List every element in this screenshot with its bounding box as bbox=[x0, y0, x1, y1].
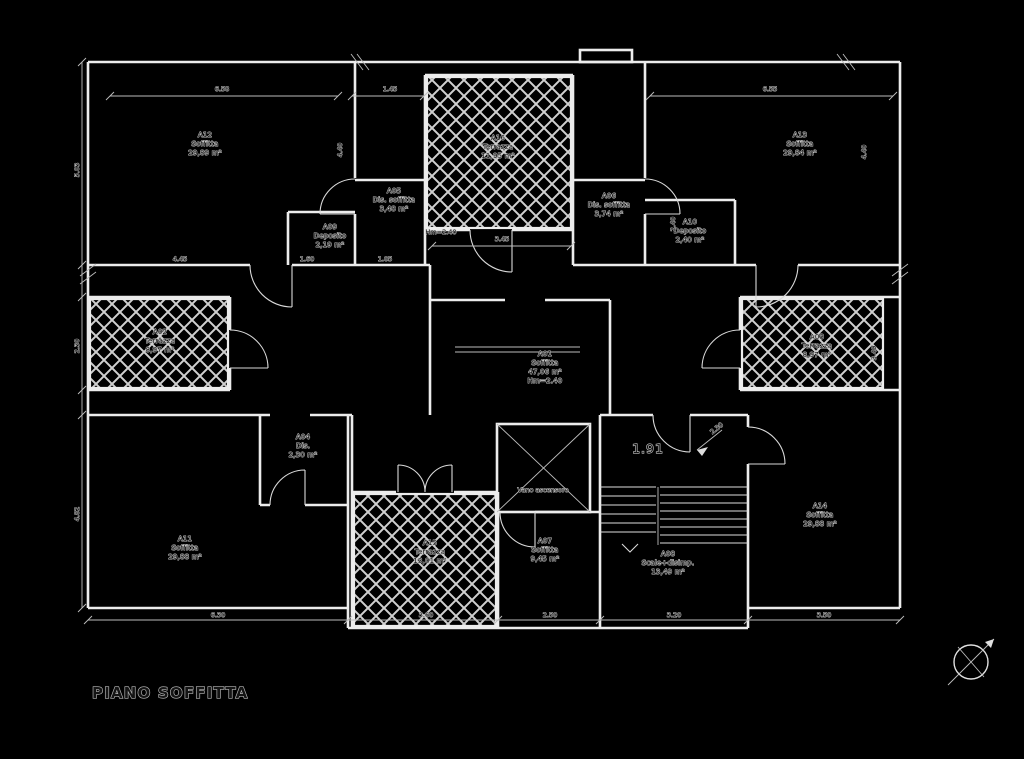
room-a09-code: A09 bbox=[323, 223, 337, 231]
room-a05-code: A05 bbox=[387, 187, 401, 195]
room-a01-height: Hm=2.40 bbox=[528, 377, 563, 385]
room-a12-area: 29,89 m² bbox=[188, 149, 222, 157]
dim-top-right-width: 6.55 bbox=[763, 85, 777, 93]
room-a07-name: Soffitta bbox=[532, 546, 559, 554]
room-a01-code: A01 bbox=[538, 350, 552, 358]
room-a03-code: A03 bbox=[810, 333, 824, 341]
roof-chimney bbox=[580, 50, 632, 62]
room-a14-name: Soffitta bbox=[807, 511, 834, 519]
room-a16-name: Terrazza bbox=[482, 143, 514, 151]
room-a05-area: 3,48 m² bbox=[380, 205, 409, 213]
dim-top-mid-left: 1.45 bbox=[383, 85, 397, 93]
room-a09-name: Deposito bbox=[314, 232, 347, 240]
room-a08-area: 13,49 m² bbox=[651, 568, 685, 576]
dim-a12-height: 4.40 bbox=[336, 143, 344, 157]
dim-left-middle: 2.30 bbox=[73, 339, 81, 353]
room-a16-area: 11,95 m² bbox=[481, 152, 515, 160]
dim-inner-3: 1.05 bbox=[378, 255, 392, 263]
room-a07-code: A07 bbox=[538, 537, 552, 545]
room-a16-code: A16 bbox=[491, 134, 506, 142]
stair-width-dim: 1.91 bbox=[632, 441, 664, 456]
north-compass-icon bbox=[948, 639, 994, 685]
dim-right-terrace: 3.40 bbox=[870, 346, 878, 360]
elevator-cross-lines bbox=[497, 424, 590, 512]
dim-terrace-top-width: 3.45 bbox=[495, 235, 509, 243]
dim-inner-1: 4.45 bbox=[173, 255, 187, 263]
room-a15-area: 13,01 m² bbox=[413, 557, 447, 565]
room-a11-code: A11 bbox=[178, 535, 192, 543]
dim-bottom-3: 2.50 bbox=[543, 611, 557, 619]
room-a04-area: 2,30 m² bbox=[289, 451, 318, 459]
room-a13-code: A13 bbox=[793, 131, 807, 139]
room-a13-area: 29,84 m² bbox=[783, 149, 817, 157]
room-a04-code: A04 bbox=[296, 433, 311, 441]
room-a10-name: Deposito bbox=[674, 227, 707, 235]
room-a12-name: Soffitta bbox=[192, 140, 219, 148]
room-a03-name: Terrazza bbox=[801, 342, 833, 350]
room-a06-area: 3,74 m² bbox=[595, 210, 624, 218]
room-a12-code: A12 bbox=[198, 131, 212, 139]
room-a14-code: A14 bbox=[813, 502, 828, 510]
floor-plan-drawing: A12 Soffitta 29,89 m² A16 Terrazza 11,95… bbox=[0, 0, 1024, 759]
room-a08-name: Scale+disimp. bbox=[642, 559, 695, 567]
room-a07-area: 9,45 m² bbox=[531, 555, 560, 563]
room-a05-name: Dis. soffitta bbox=[373, 196, 416, 204]
room-a06-code: A06 bbox=[602, 192, 617, 200]
room-a13-name: Soffitta bbox=[787, 140, 814, 148]
dim-bottom-5: 3.50 bbox=[817, 611, 831, 619]
dim-top-left-width: 6.58 bbox=[215, 85, 229, 93]
room-a14-area: 29,88 m² bbox=[803, 520, 837, 528]
room-a06-name: Dis. soffitta bbox=[588, 201, 631, 209]
staircase bbox=[600, 487, 748, 552]
floor-plan-page: A12 Soffitta 29,89 m² A16 Terrazza 11,95… bbox=[0, 0, 1024, 759]
plan-title: PIANO SOFFITTA bbox=[92, 684, 248, 702]
mean-height-note: Hm=2.40 bbox=[425, 228, 456, 236]
stair-direction-arrow bbox=[622, 544, 638, 552]
room-a15-name: Terrazza bbox=[414, 548, 446, 556]
dim-inner-2: 1.60 bbox=[300, 255, 314, 263]
room-a11-name: Soffitta bbox=[172, 544, 199, 552]
dim-a06-height: 2.40 bbox=[669, 217, 677, 231]
room-a10-area: 2,40 m² bbox=[676, 236, 705, 244]
dim-bottom-2: 3.60 bbox=[419, 611, 433, 619]
elevator-shaft bbox=[497, 424, 590, 512]
elevator-label: Vano ascensore bbox=[517, 486, 568, 494]
room-a10-code: A10 bbox=[683, 218, 697, 226]
room-a02-code: A02 bbox=[153, 328, 167, 336]
dim-left-lower: 4.82 bbox=[73, 507, 81, 521]
dim-a13-height: 4.40 bbox=[860, 145, 868, 159]
dim-bottom-4: 3.20 bbox=[667, 611, 681, 619]
room-a03-area: 8,97 m² bbox=[803, 351, 832, 359]
room-a15-code: A15 bbox=[423, 539, 437, 547]
room-a02-area: 8,97 m² bbox=[146, 346, 175, 354]
room-a11-area: 29,88 m² bbox=[168, 553, 202, 561]
room-a08-code: A08 bbox=[661, 550, 675, 558]
slope-arrow bbox=[697, 430, 722, 456]
room-a09-area: 2,19 m² bbox=[316, 241, 345, 249]
room-a02-name: Terrazza bbox=[144, 337, 176, 345]
room-a01-name: Soffitta bbox=[532, 359, 559, 367]
dim-bottom-1: 6.30 bbox=[211, 611, 225, 619]
room-a01-area: 47,06 m² bbox=[528, 368, 562, 376]
dim-left-upper: 5.03 bbox=[73, 163, 81, 177]
room-a04-name: Dis. bbox=[296, 442, 310, 450]
